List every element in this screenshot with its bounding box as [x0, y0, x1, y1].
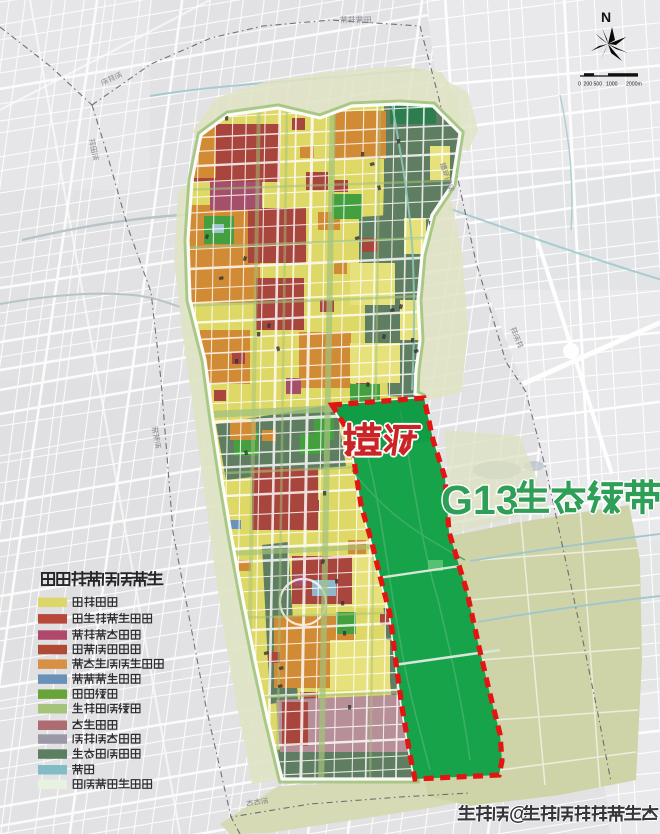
svg-text:200: 200: [584, 82, 593, 88]
svg-text:1000: 1000: [606, 82, 618, 88]
svg-text:G13: G13: [441, 477, 519, 523]
svg-text:2000m: 2000m: [626, 82, 642, 88]
svg-text:N: N: [601, 9, 611, 25]
svg-text:0: 0: [578, 82, 581, 88]
svg-text:500: 500: [594, 82, 603, 88]
